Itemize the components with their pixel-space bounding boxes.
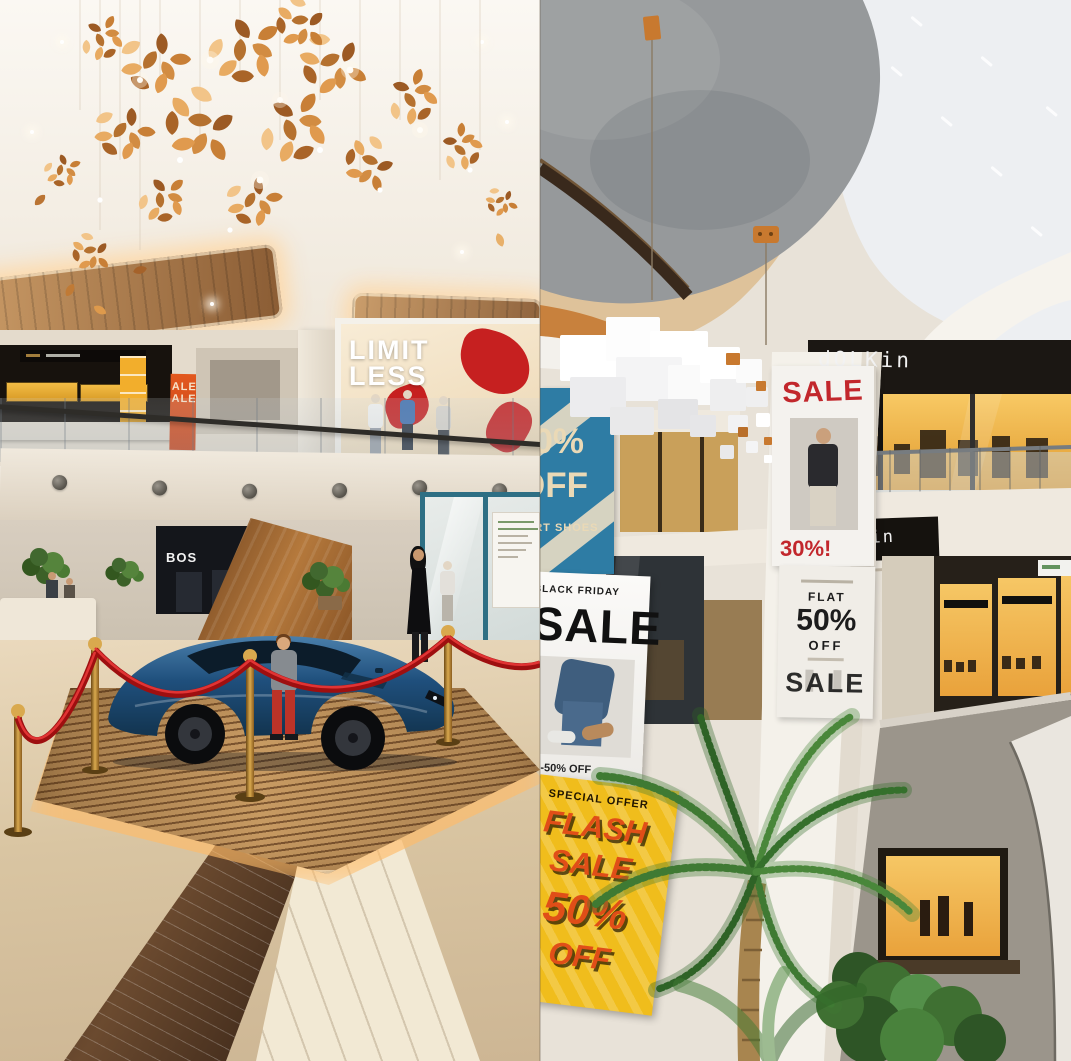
copper-pendant [753,226,779,243]
copper-leaf-installation [0,0,540,345]
sign-text-blur [498,521,534,523]
model-jacket [808,444,838,488]
stanchion-posts [4,625,460,837]
cloud-blocks [560,317,772,463]
model-head [816,428,831,444]
planter-greenery [310,562,328,580]
small-sign-text-blur [1042,565,1060,569]
right-render: 50% OFF SPORT SHOES SALE 30%! FLAT 50% O… [540,0,1071,1061]
flat-unit: OFF [778,637,874,654]
sign-logo [26,354,40,357]
boutique-window [998,578,1056,696]
poster-model-photo [790,418,858,530]
sign-text-blur [46,354,80,357]
sale-poster: SALE 30%! [772,366,876,566]
flat-value: 50% [778,603,875,639]
panel-divider [539,0,541,1061]
round-downlight [52,475,67,490]
blue-banner-caption: SPORT SHOES [540,522,598,534]
window-info-sign [492,512,540,608]
model-pants [810,486,836,526]
sign-text-blur [498,556,518,558]
boutique-window [1061,574,1071,694]
palm-tree [560,660,960,1061]
limitless-sign: LIMIT LESS [349,338,429,389]
ceiling-mottle [590,90,810,230]
sign-text-blur [498,528,538,530]
sign-text-blur [498,535,528,537]
limitless-line1: LIMIT [349,338,429,364]
black-friday-title: SALE [540,595,663,656]
sign-text-blur [498,549,526,551]
boutique-inner-sign [944,600,988,608]
lobby-plant [30,548,48,566]
poster-fineprint-blur [801,580,853,584]
stanchions-and-ropes [0,598,540,898]
sign-text-blur [498,542,532,544]
boutique-inner-sign [1002,596,1052,604]
pixel-cloud-sculpture [550,295,780,480]
round-downlight [242,484,257,499]
round-downlight [332,483,347,498]
sale-poster-discount: 30%! [780,536,831,562]
red-window-decor [452,324,537,401]
left-render: SALE SALE LIMIT LESS [0,0,540,1061]
boss-sign: BOS [166,550,197,565]
pendant-mount [643,15,661,41]
sale-poster-title: SALE [771,374,874,411]
lobby-plant [112,558,126,572]
round-downlight [152,480,167,495]
limitless-line2: LESS [349,364,429,390]
mall-render-comparison: SALE SALE LIMIT LESS [0,0,1071,1061]
leaf-clusters [32,0,523,317]
